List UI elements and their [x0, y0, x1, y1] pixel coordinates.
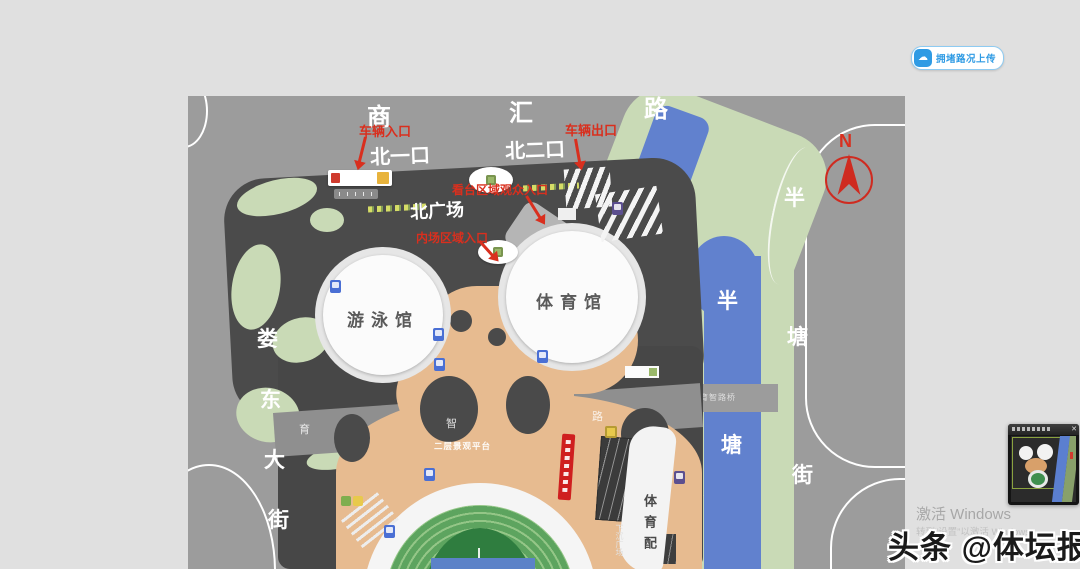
info-marker [434, 358, 445, 371]
green-sign [649, 368, 657, 376]
street-name-char: 东 [260, 384, 281, 414]
inner-road-char: 路 [592, 408, 603, 424]
compass-n-label: N [839, 131, 852, 152]
info-marker [384, 525, 395, 538]
inner-road-char: 育 [299, 421, 310, 437]
arrow-vehicle-entrance [358, 137, 367, 163]
venue-map: 育智路桥 二层景观平台 游泳馆 [188, 96, 905, 569]
pool-label: 游泳馆 [347, 306, 419, 331]
road-curve [188, 96, 208, 148]
street-name-char: 半 [784, 182, 805, 212]
kiosk-yellow-sign [377, 172, 389, 184]
page: 育智路桥 二层景观平台 游泳馆 [0, 0, 1080, 569]
road-name-char: 路 [644, 96, 668, 124]
street-name-char: 塘 [787, 321, 808, 351]
service-marker [353, 496, 363, 506]
gate1-label: 北一口 [370, 139, 431, 170]
info-marker [433, 328, 444, 341]
platform-slab [558, 208, 576, 220]
service-marker [341, 496, 351, 506]
plaza-gap [506, 376, 550, 434]
minimap-content [1011, 436, 1076, 502]
windows-watermark-line1: 激活 Windows [916, 503, 1011, 524]
support-label: 体育配 [640, 494, 659, 557]
plaza-gap [450, 310, 472, 332]
bridge-label: 育智路桥 [700, 392, 736, 403]
upload-button-label: 拥堵路况上传 [936, 51, 996, 65]
river-name-char: 半 [717, 285, 738, 315]
inner-road-char: 智 [446, 415, 457, 431]
tree-patch [310, 208, 344, 232]
sunken-plaza-label: 下沉广场 [614, 524, 625, 556]
street-name-char: 街 [792, 459, 813, 489]
north-plaza-label: 北广场 [409, 196, 464, 225]
plaza-gap [420, 376, 478, 442]
platform-label: 二层景观平台 [434, 440, 491, 452]
info-marker [330, 280, 341, 293]
stadium-banner [431, 558, 535, 569]
info-marker [537, 350, 548, 363]
street-name-char: 街 [268, 504, 289, 534]
metro-marker [674, 471, 685, 484]
gym-label: 体育馆 [536, 288, 608, 313]
vehicle-exit-label: 车辆出口 [565, 120, 617, 139]
compass-icon [825, 156, 873, 204]
arrow-vehicle-exit [574, 139, 581, 163]
stairs [595, 186, 663, 242]
road-name-char: 汇 [509, 96, 533, 128]
river-name-char: 塘 [721, 429, 742, 459]
plaza-gap [334, 414, 370, 462]
stand-entrance-label: 看台区域观众入口 [452, 181, 548, 198]
road-curve [188, 464, 276, 569]
cloud-icon: ☁ [914, 49, 932, 67]
street-name-char: 娄 [257, 323, 278, 353]
kiosk-red-sign [331, 173, 340, 183]
info-marker [424, 468, 435, 481]
platform-slab [625, 366, 659, 378]
kiosk-building [328, 170, 392, 186]
service-marker [605, 426, 617, 438]
street-name-char: 大 [264, 444, 285, 474]
infield-entrance-label: 内场区域入口 [416, 229, 488, 246]
minimap-close-icon[interactable]: ✕ [1071, 425, 1077, 434]
plaza-gap [488, 328, 506, 346]
minimap-thumbnail[interactable]: ✕ [1008, 424, 1079, 505]
upload-button[interactable]: ☁ 拥堵路况上传 [911, 46, 1004, 70]
metro-marker [612, 202, 623, 215]
minimap-titlebar: ✕ [1008, 424, 1079, 435]
gate2-label: 北二口 [505, 133, 566, 164]
byline-watermark: 头条 @体坛报 [888, 522, 1080, 567]
kiosk-tag [334, 189, 378, 199]
